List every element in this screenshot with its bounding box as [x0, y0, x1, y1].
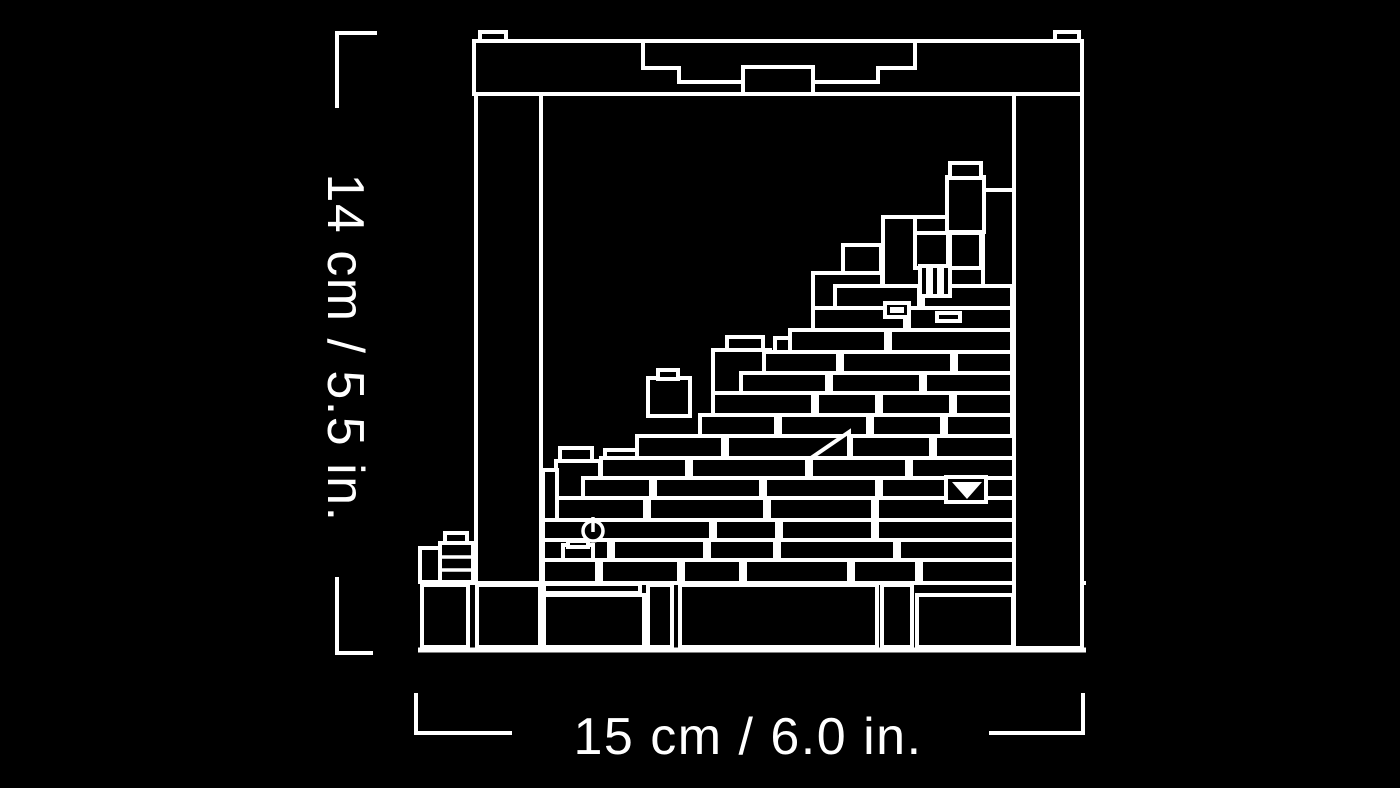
frame-top-tab-right: [1055, 32, 1079, 41]
frame-right-column: [1014, 94, 1082, 648]
frame-left-column: [476, 94, 541, 583]
height-dimension-label: 14 cm / 5.5 in.: [315, 173, 375, 522]
corner-brick-stack: [420, 533, 473, 582]
product-dimensions-figure: 14 cm / 5.5 in. 15 cm / 6.0 in.: [0, 0, 1400, 788]
brick-mountain-blocks: [543, 286, 1014, 583]
arrow-down-tile: [946, 477, 986, 502]
lego-set-outline-illustration: [0, 0, 1400, 788]
frame-top-tab-left: [480, 32, 506, 41]
width-dimension-label: 15 cm / 6.0 in.: [573, 707, 922, 767]
